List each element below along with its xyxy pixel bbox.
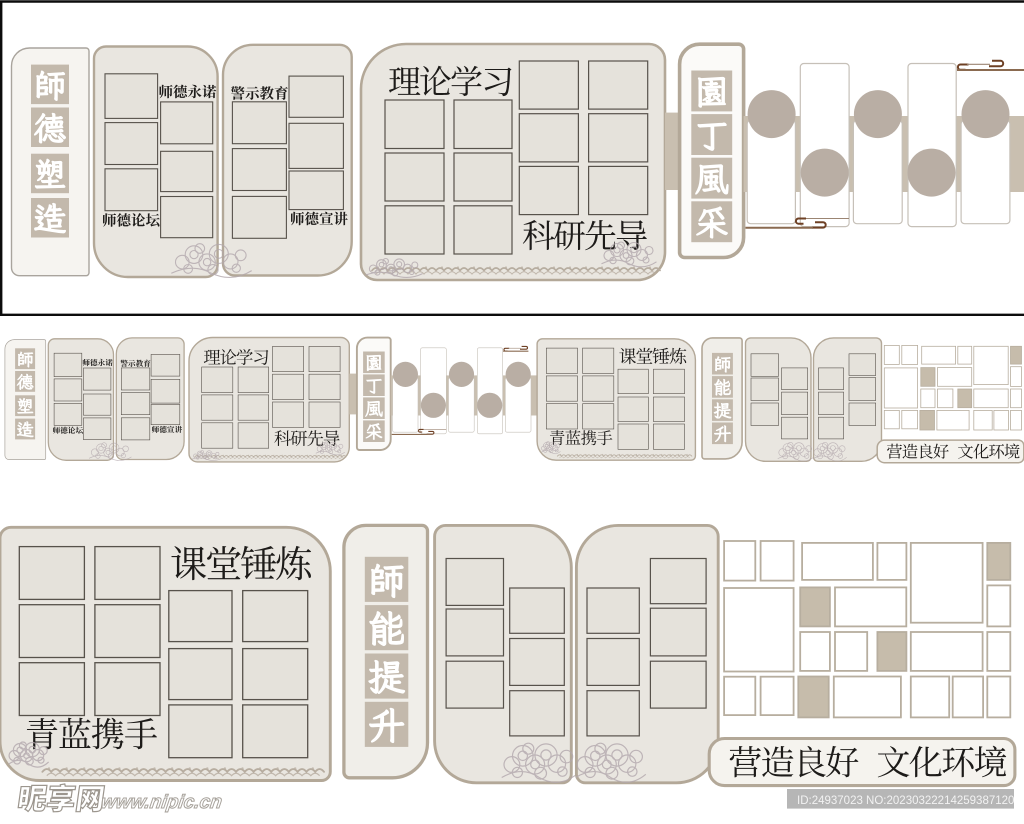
svg-text:www.nipic.cn: www.nipic.cn xyxy=(100,792,224,813)
svg-text:ID:24937023 NO:202303222142593: ID:24937023 NO:20230322214259387120 xyxy=(797,795,1014,807)
